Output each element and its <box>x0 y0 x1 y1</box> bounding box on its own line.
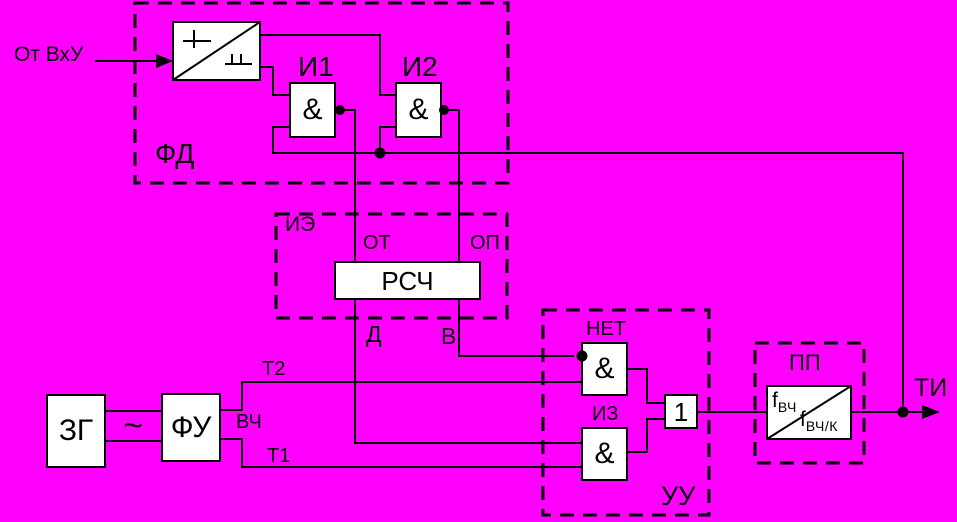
and2-name-label: И2 <box>402 53 438 81</box>
and1-name-label: И1 <box>298 53 334 81</box>
sine-symbol: ~ <box>110 408 156 444</box>
former-to-and1-wire <box>260 67 290 95</box>
iz-name-label: ИЗ <box>592 404 618 424</box>
input-source-label: От ВхУ <box>14 44 83 65</box>
v-output-label: В <box>441 325 456 348</box>
output-arrowhead-icon <box>922 405 940 419</box>
and1-output-dot <box>335 105 345 115</box>
ie-label: ИЭ <box>285 214 315 235</box>
fu-label: ФУ <box>162 394 220 461</box>
v-wire <box>459 299 574 356</box>
d-output-label: Д <box>366 323 382 346</box>
t1-signal-label: Т1 <box>267 446 290 466</box>
net-symbol: & <box>582 343 627 395</box>
d-wire <box>355 299 582 443</box>
input-arrowhead-icon <box>156 54 173 68</box>
uu-label: УУ <box>661 483 695 510</box>
t2-wire <box>220 382 582 410</box>
and2-symbol: & <box>396 83 441 137</box>
f-in-sub: ВЧ <box>778 399 797 415</box>
output-ti-label: ТИ <box>914 376 947 401</box>
divider-input-freq-label: fВЧ <box>772 390 797 414</box>
net-to-or-wire <box>627 369 665 403</box>
counter-label: РСЧ <box>335 262 480 299</box>
iz-symbol: & <box>582 428 627 480</box>
f-out-sub: ВЧ/К <box>806 418 838 434</box>
and2-to-op-wire <box>441 110 459 261</box>
block-diagram: От ВхУ ФД И1 И2 ИЭ ОТ ОП Д В НЕТ ИЗ УУ П… <box>0 0 957 522</box>
feedback-junction-dot <box>375 148 386 159</box>
or-symbol: 1 <box>665 395 697 428</box>
output-junction-dot <box>898 407 909 418</box>
iz-to-or-wire <box>627 419 665 452</box>
op-input-label: ОП <box>470 233 500 253</box>
net-name-label: НЕТ <box>586 319 626 339</box>
t2-signal-label: Т2 <box>262 359 285 379</box>
and1-symbol: & <box>290 83 335 137</box>
pp-label: ПП <box>789 352 821 374</box>
fd-label: ФД <box>155 140 194 168</box>
vch-signal-label: ВЧ <box>236 412 262 432</box>
divider-output-freq-label: fВЧ/К <box>800 409 838 433</box>
ot-input-label: ОТ <box>363 233 391 253</box>
zg-label: ЗГ <box>47 395 105 467</box>
and1-to-ot-wire <box>335 110 355 261</box>
